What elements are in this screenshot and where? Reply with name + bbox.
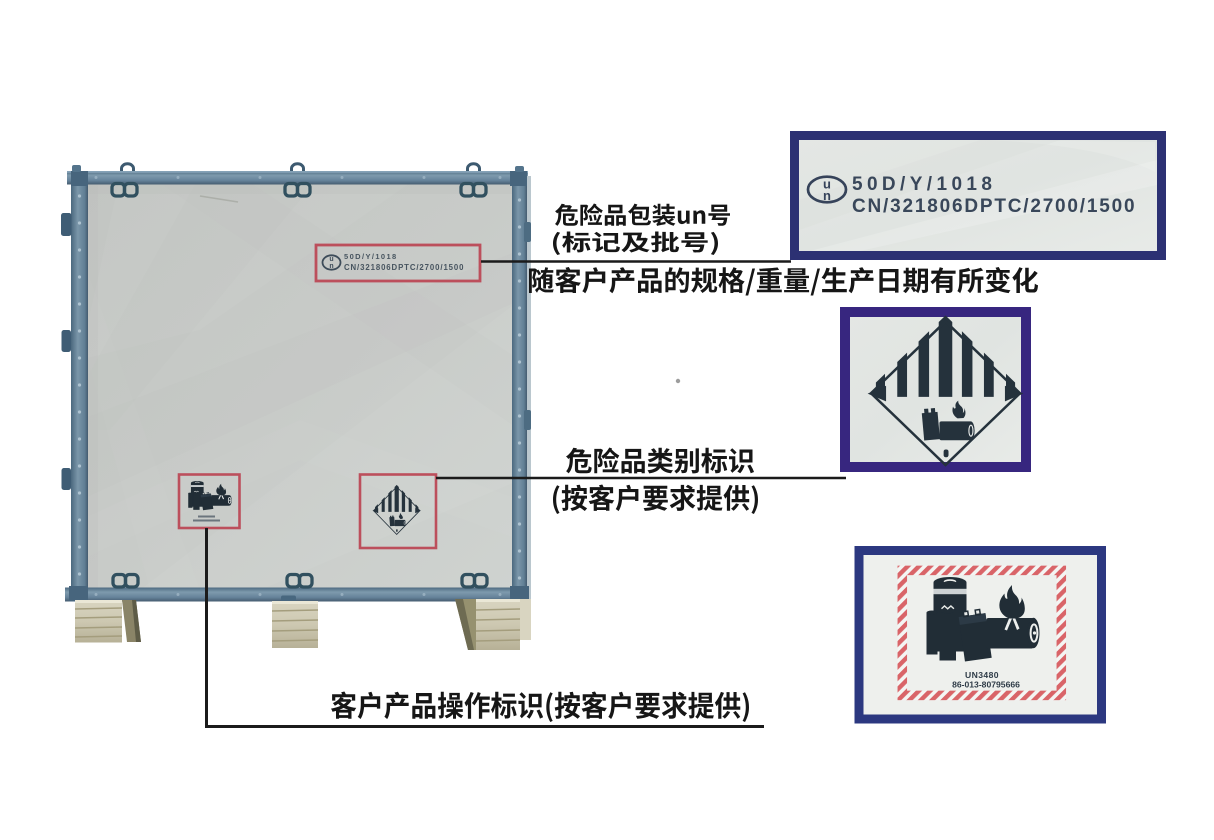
svg-text:50D/Y/1018: 50D/Y/1018 [852, 174, 996, 195]
svg-text:50D/Y/1018: 50D/Y/1018 [344, 252, 398, 261]
svg-text:86-013-80795666: 86-013-80795666 [952, 680, 1020, 690]
svg-text:n: n [329, 263, 333, 270]
svg-text:UN3480: UN3480 [965, 670, 999, 680]
svg-text:CN/321806DPTC/2700/1500: CN/321806DPTC/2700/1500 [344, 263, 464, 272]
svg-text:CN/321806DPTC/2700/1500: CN/321806DPTC/2700/1500 [852, 196, 1136, 217]
svg-text:n: n [823, 188, 831, 203]
svg-text:u: u [329, 256, 333, 263]
